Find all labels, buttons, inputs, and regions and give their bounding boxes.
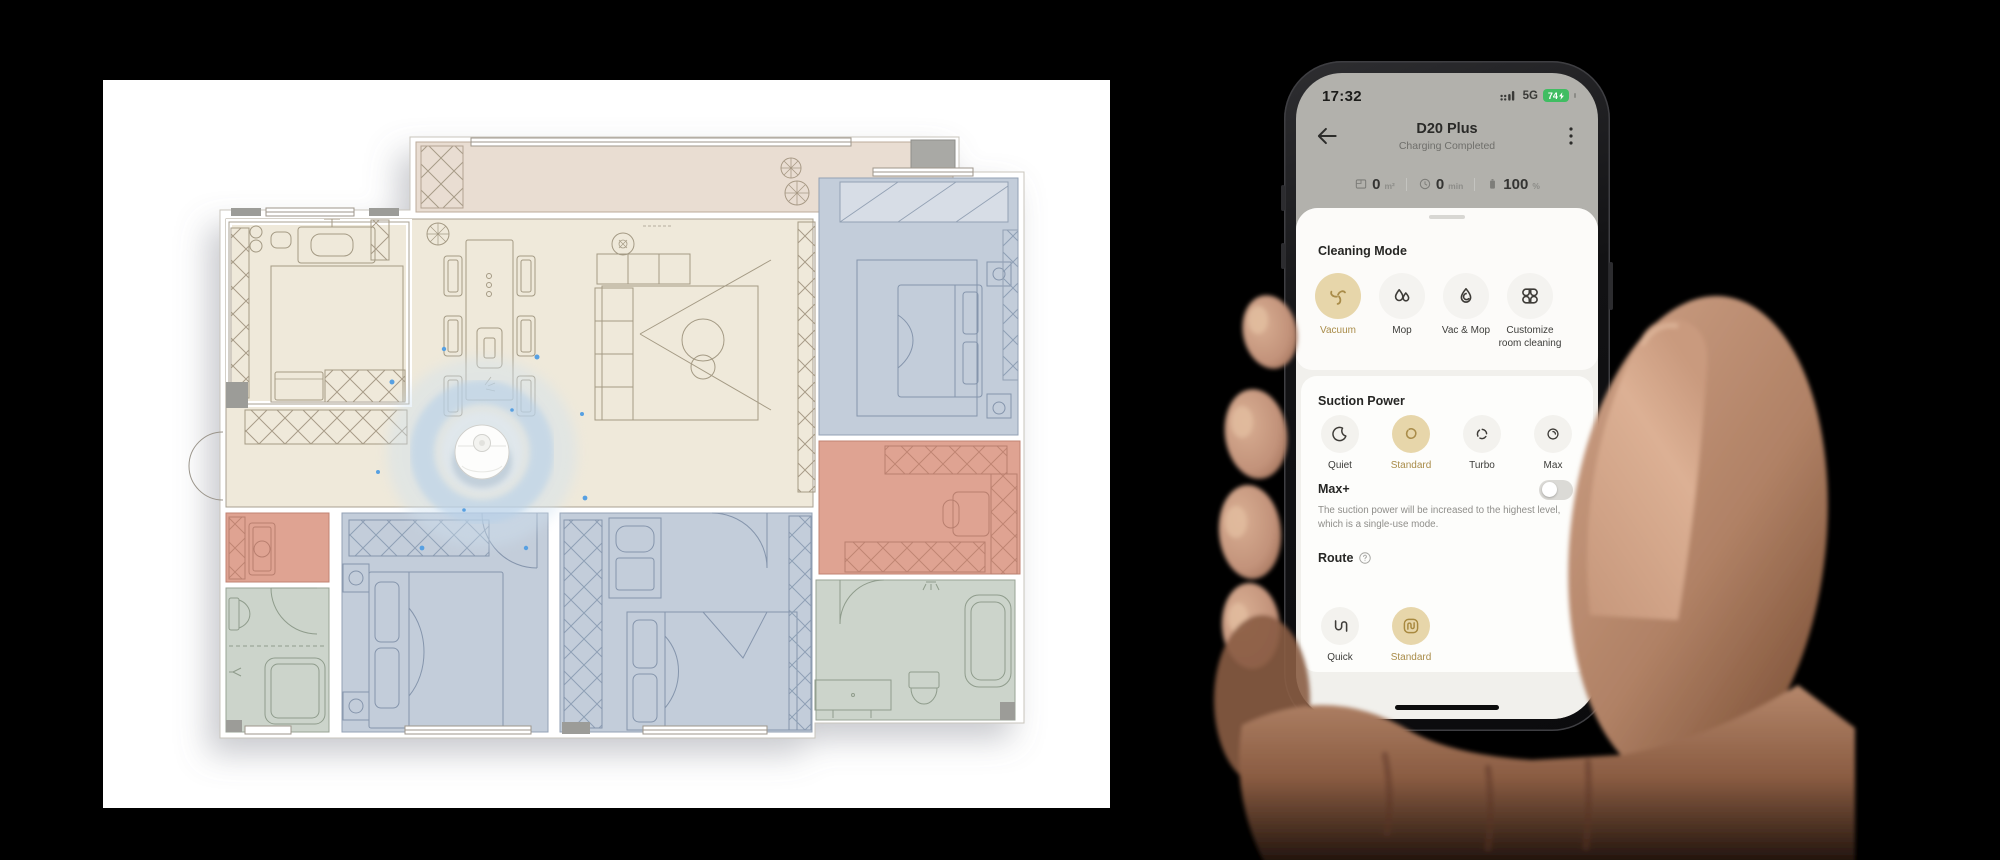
room-bedroom-1 [342,513,548,734]
status-time: 17:32 [1322,88,1362,105]
room-bathroom-right [815,580,1015,720]
floor-plan-map [103,80,1110,808]
menu-button[interactable] [1560,123,1582,149]
page-title: D20 Plus [1296,121,1598,137]
charging-bolt-icon [1559,92,1564,100]
room-laundry-left [226,513,329,582]
battery-badge: 74 [1543,89,1569,102]
kebab-menu-icon [1569,127,1573,145]
room-bedroom-2 [560,513,812,734]
signal-icon [1500,90,1518,101]
network-label: 5G [1523,90,1538,102]
fingertips [1215,290,1304,671]
room-study [226,208,409,408]
room-bathroom-left [226,588,329,734]
status-bar: 17:32 5G 74 [1296,73,1598,113]
room-dressing [819,441,1020,574]
battery-percent: 74 [1548,91,1558,101]
scene: { "floor_plan": { "palette": { "canvas":… [0,0,2000,860]
page-subtitle: Charging Completed [1296,140,1598,152]
floor-plan-canvas [103,80,1110,808]
hand-photo [1150,170,1870,860]
hand-base [1239,685,1855,860]
battery-tip [1574,93,1576,98]
